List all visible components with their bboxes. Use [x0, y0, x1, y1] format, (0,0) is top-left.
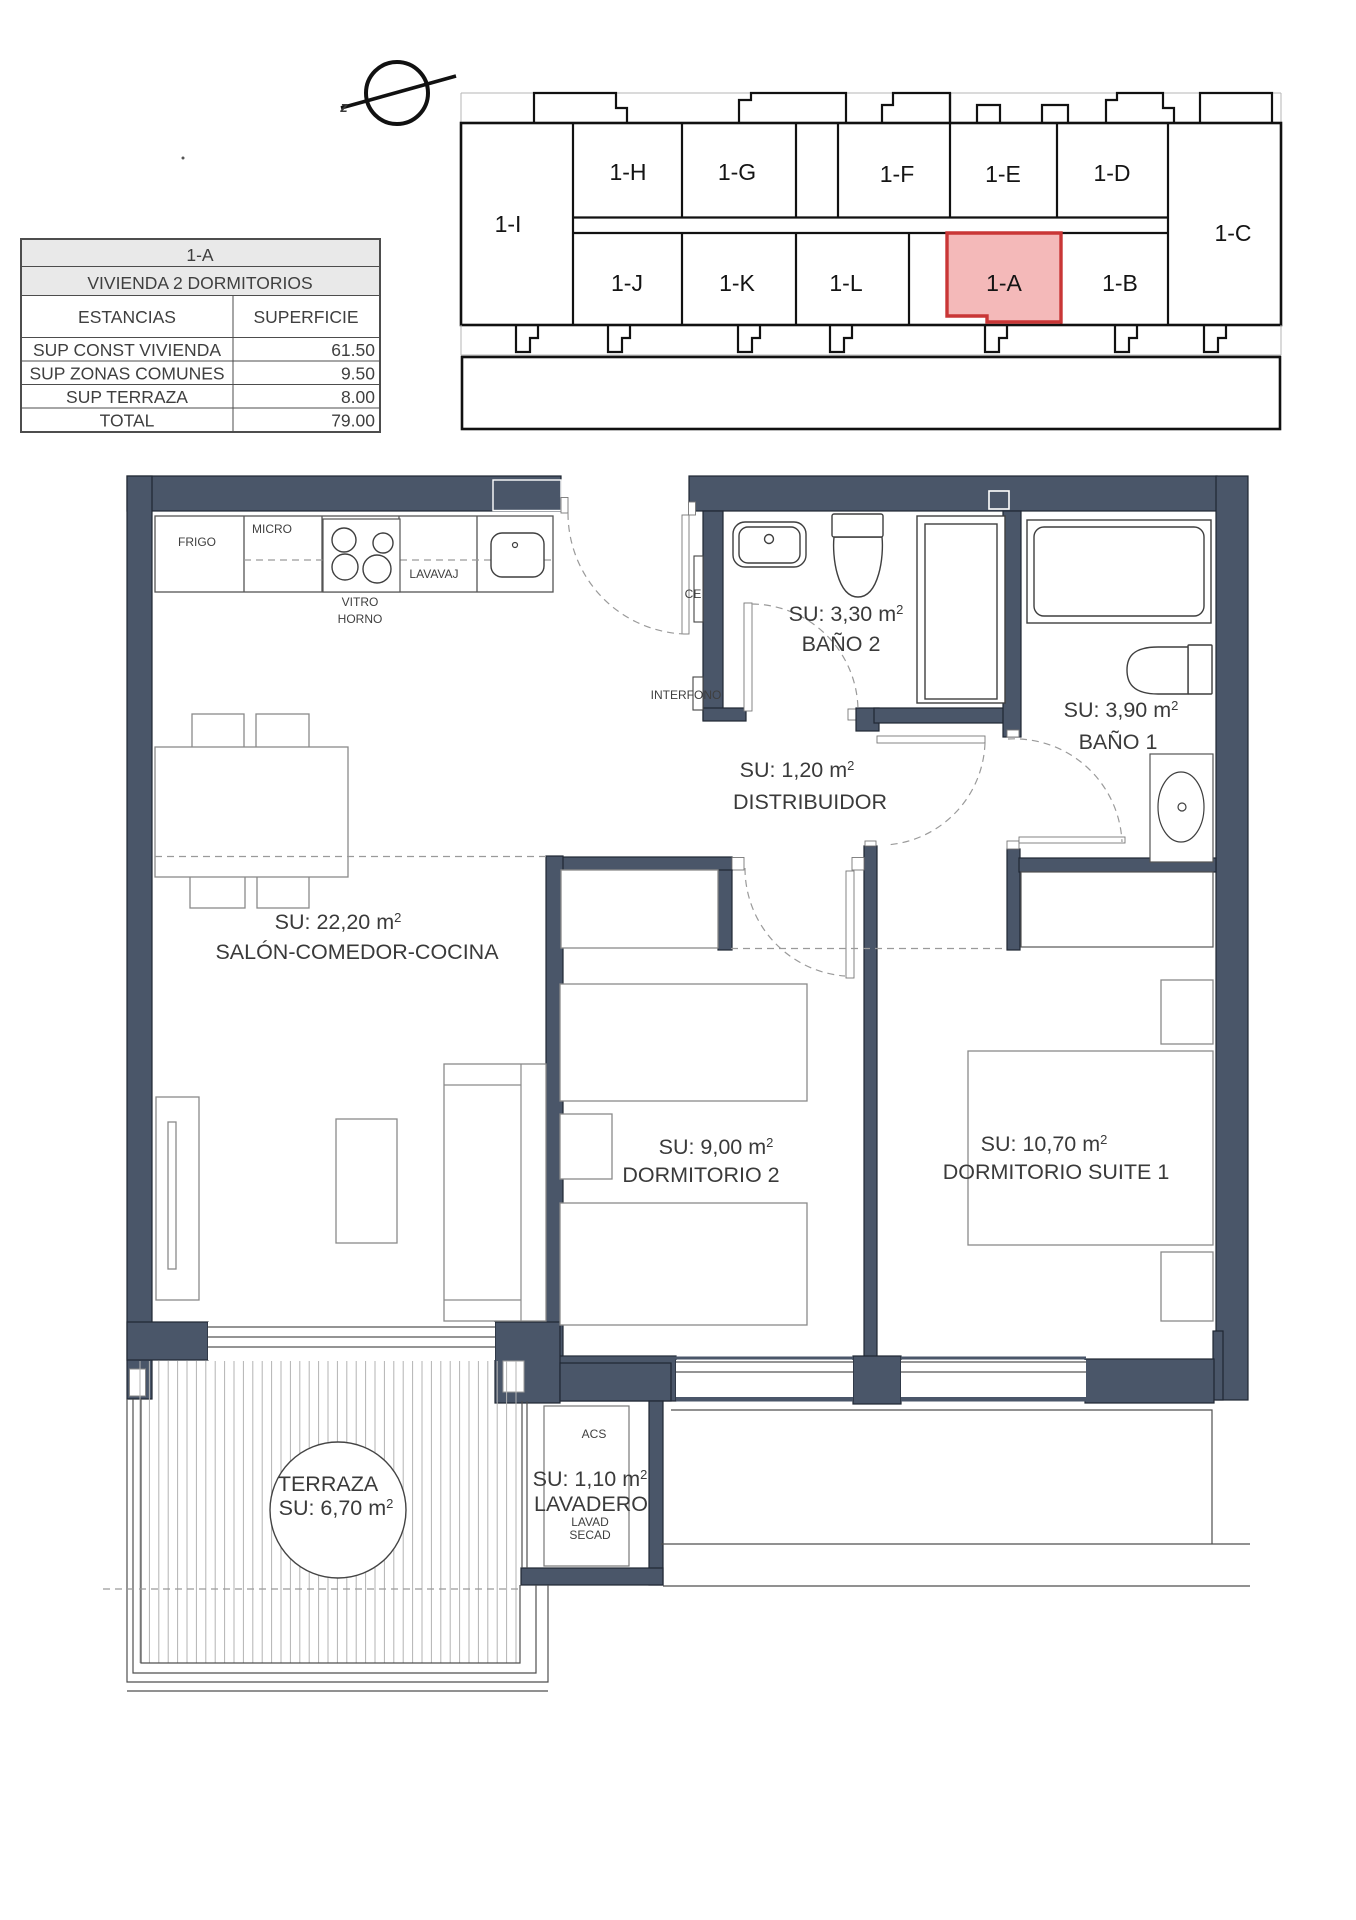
- svg-text:SU: 1,20 m2: SU: 1,20 m2: [740, 758, 855, 782]
- svg-text:FRIGO: FRIGO: [178, 535, 216, 549]
- svg-text:1-G: 1-G: [718, 159, 756, 185]
- svg-text:79.00: 79.00: [331, 411, 375, 431]
- svg-text:SUPERFICIE: SUPERFICIE: [253, 307, 358, 327]
- svg-text:BAÑO 1: BAÑO 1: [1079, 729, 1158, 754]
- svg-text:1-E: 1-E: [985, 161, 1021, 187]
- svg-text:VITRO: VITRO: [342, 595, 379, 609]
- svg-text:1-C: 1-C: [1214, 220, 1251, 246]
- svg-text:1-I: 1-I: [495, 211, 522, 237]
- svg-text:CE: CE: [685, 587, 702, 601]
- svg-text:1-K: 1-K: [719, 270, 755, 296]
- svg-text:LAVAD: LAVAD: [571, 1515, 609, 1529]
- svg-text:1-A: 1-A: [986, 270, 1022, 296]
- svg-text:1-A: 1-A: [186, 245, 214, 265]
- svg-text:SUP CONST VIVIENDA: SUP CONST VIVIENDA: [33, 340, 221, 360]
- svg-text:1-J: 1-J: [611, 270, 643, 296]
- svg-text:TERRAZA: TERRAZA: [278, 1472, 379, 1496]
- svg-text:9.50: 9.50: [341, 364, 375, 384]
- svg-text:8.00: 8.00: [341, 387, 375, 407]
- svg-text:SU: 3,30 m2: SU: 3,30 m2: [789, 602, 904, 626]
- svg-text:SU: 22,20 m2: SU: 22,20 m2: [275, 910, 402, 934]
- svg-text:1-D: 1-D: [1093, 160, 1130, 186]
- svg-text:SUP ZONAS COMUNES: SUP ZONAS COMUNES: [29, 364, 224, 384]
- svg-text:LAVAVAJ: LAVAVAJ: [409, 567, 458, 581]
- svg-text:MICRO: MICRO: [252, 522, 292, 536]
- svg-text:SU: 10,70 m2: SU: 10,70 m2: [981, 1132, 1108, 1156]
- svg-text:ACS: ACS: [582, 1427, 607, 1441]
- svg-text:ESTANCIAS: ESTANCIAS: [78, 307, 176, 327]
- svg-text:SU: 3,90 m2: SU: 3,90 m2: [1064, 698, 1179, 722]
- svg-text:TOTAL: TOTAL: [100, 411, 155, 431]
- svg-text:DISTRIBUIDOR: DISTRIBUIDOR: [733, 790, 887, 814]
- svg-text:BAÑO 2: BAÑO 2: [802, 631, 881, 656]
- svg-text:DORMITORIO SUITE 1: DORMITORIO SUITE 1: [943, 1160, 1170, 1184]
- svg-text:SU: 9,00 m2: SU: 9,00 m2: [659, 1135, 774, 1159]
- svg-text:1-L: 1-L: [829, 270, 862, 296]
- svg-text:1-B: 1-B: [1102, 270, 1138, 296]
- svg-text:1-H: 1-H: [609, 159, 646, 185]
- svg-text:z: z: [339, 99, 348, 116]
- svg-text:SECAD: SECAD: [569, 1528, 611, 1542]
- svg-text:1-F: 1-F: [880, 161, 915, 187]
- svg-text:SU: 1,10 m2: SU: 1,10 m2: [533, 1467, 648, 1491]
- svg-text:61.50: 61.50: [331, 340, 375, 360]
- svg-text:SU: 6,70 m2: SU: 6,70 m2: [279, 1496, 394, 1520]
- svg-text:LAVADERO: LAVADERO: [534, 1492, 648, 1516]
- svg-text:VIVIENDA 2 DORMITORIOS: VIVIENDA 2 DORMITORIOS: [87, 273, 312, 293]
- svg-text:SALÓN-COMEDOR-COCINA: SALÓN-COMEDOR-COCINA: [215, 939, 499, 964]
- svg-text:HORNO: HORNO: [338, 612, 383, 626]
- svg-text:SUP TERRAZA: SUP TERRAZA: [66, 387, 188, 407]
- svg-text:INTERFONO: INTERFONO: [651, 688, 722, 702]
- svg-text:DORMITORIO 2: DORMITORIO 2: [622, 1163, 779, 1187]
